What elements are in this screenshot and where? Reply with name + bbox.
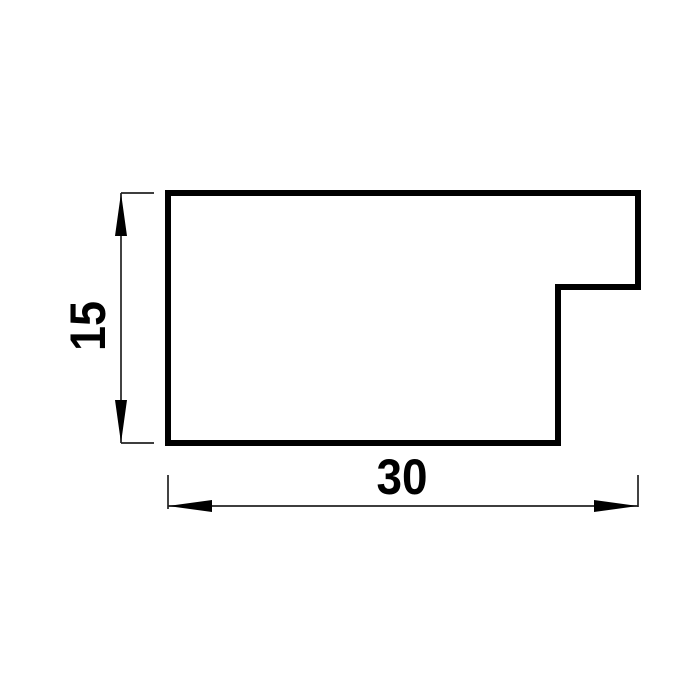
svg-text:15: 15 — [60, 301, 116, 351]
svg-text:30: 30 — [377, 449, 428, 505]
